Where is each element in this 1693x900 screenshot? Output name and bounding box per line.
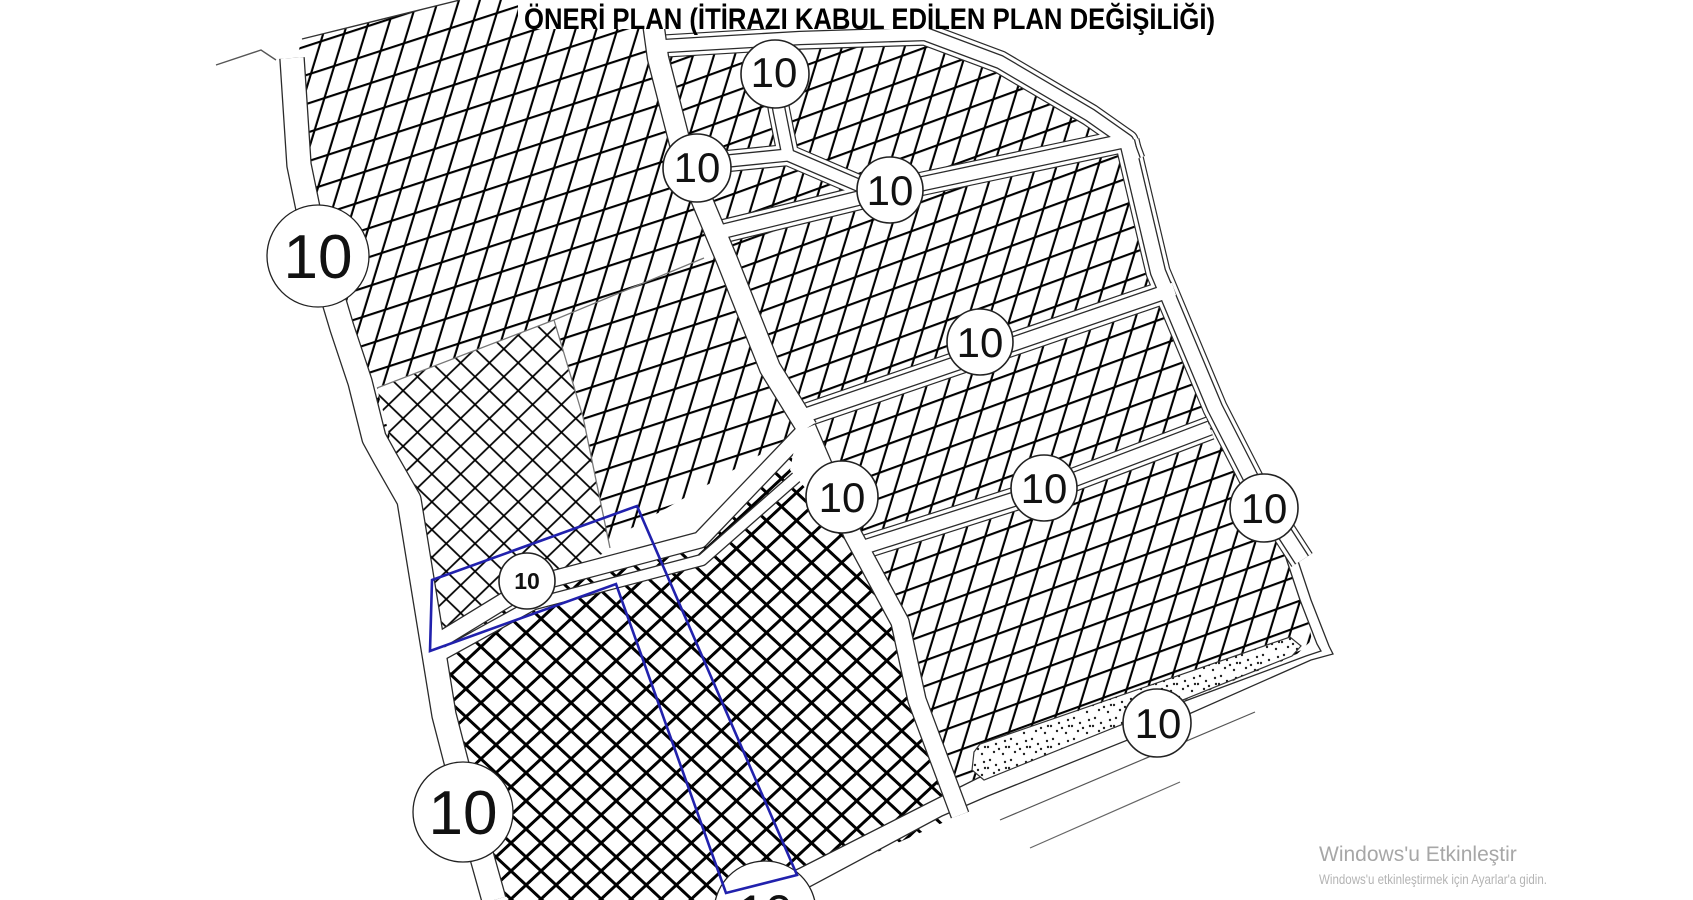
svg-text:10: 10 xyxy=(1241,485,1288,532)
svg-text:10: 10 xyxy=(514,568,540,594)
svg-text:Windows'u Etkinleştir: Windows'u Etkinleştir xyxy=(1319,843,1517,866)
svg-text:10: 10 xyxy=(1135,700,1182,747)
svg-text:10: 10 xyxy=(819,474,866,521)
svg-text:10: 10 xyxy=(674,144,721,191)
svg-text:10: 10 xyxy=(957,319,1004,366)
svg-text:10: 10 xyxy=(284,223,353,292)
svg-text:ÖNERİ PLAN (İTİRAZI KABUL EDİL: ÖNERİ PLAN (İTİRAZI KABUL EDİLEN PLAN DE… xyxy=(524,2,1215,36)
svg-text:Windows'u etkinleştirmek için: Windows'u etkinleştirmek için Ayarlar'a … xyxy=(1319,872,1547,887)
svg-text:10: 10 xyxy=(1021,465,1068,512)
svg-text:10: 10 xyxy=(751,49,798,96)
svg-text:10: 10 xyxy=(737,885,793,900)
svg-text:10: 10 xyxy=(429,779,498,848)
svg-text:10: 10 xyxy=(867,167,914,214)
